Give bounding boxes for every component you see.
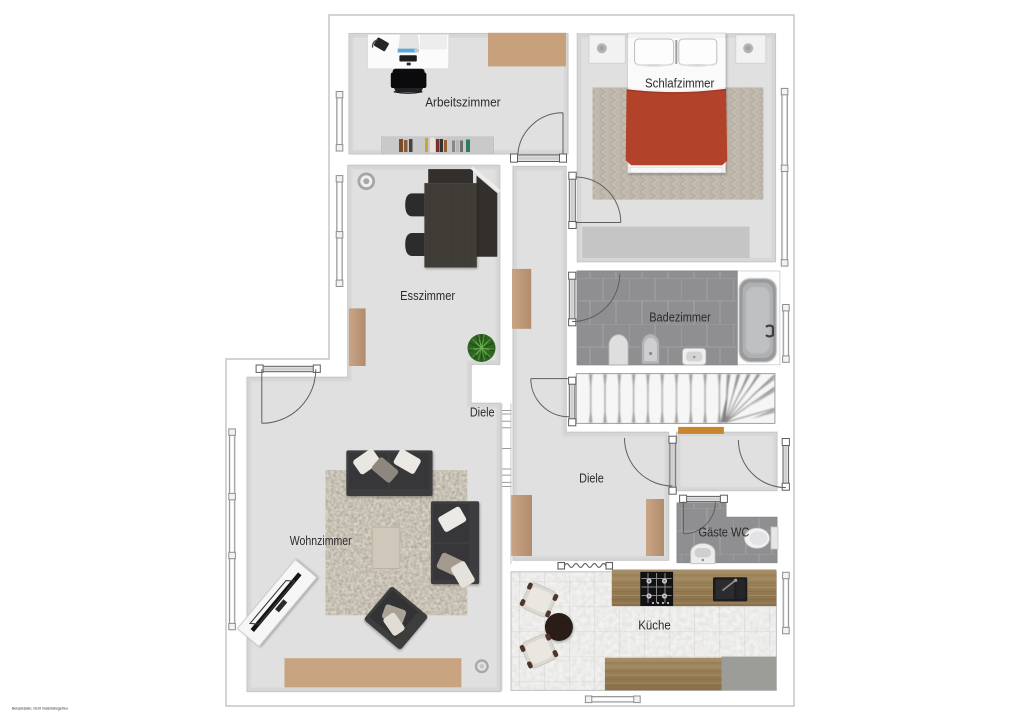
svg-text:Schlafzimmer: Schlafzimmer <box>645 77 714 91</box>
svg-text:Diele: Diele <box>470 406 495 420</box>
svg-text:Arbeitszimmer: Arbeitszimmer <box>425 96 500 110</box>
svg-text:Esszimmer: Esszimmer <box>400 289 455 303</box>
svg-text:Beispielplan, nicht maßstabsge: Beispielplan, nicht maßstabsgetreu <box>12 707 68 711</box>
svg-text:Gäste WC: Gäste WC <box>699 526 750 540</box>
svg-text:Badezimmer: Badezimmer <box>649 311 711 325</box>
svg-text:Diele: Diele <box>579 472 604 486</box>
svg-text:Wohnzimmer: Wohnzimmer <box>290 534 352 548</box>
svg-text:Küche: Küche <box>638 619 671 633</box>
